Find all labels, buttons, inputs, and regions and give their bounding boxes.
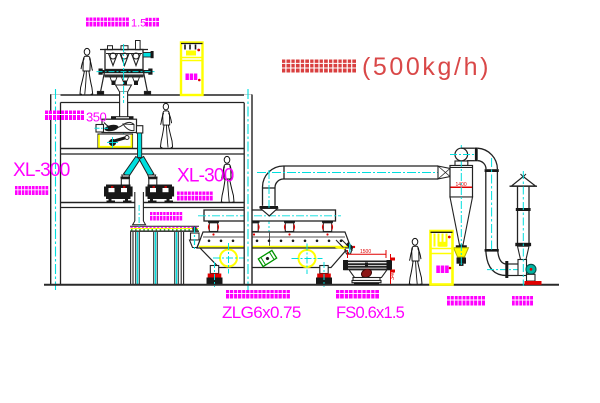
svg-text:FS0.6x1.5: FS0.6x1.5 <box>336 304 405 322</box>
svg-text:XL-300: XL-300 <box>13 160 70 181</box>
svg-text:(500kg/h): (500kg/h) <box>362 53 491 81</box>
svg-text:ZLG6x0.75: ZLG6x0.75 <box>222 303 301 322</box>
svg-text:1.5: 1.5 <box>131 18 146 30</box>
svg-text:350: 350 <box>86 110 106 125</box>
svg-text:1500: 1500 <box>360 249 371 255</box>
svg-text:XL-300: XL-300 <box>177 166 234 187</box>
